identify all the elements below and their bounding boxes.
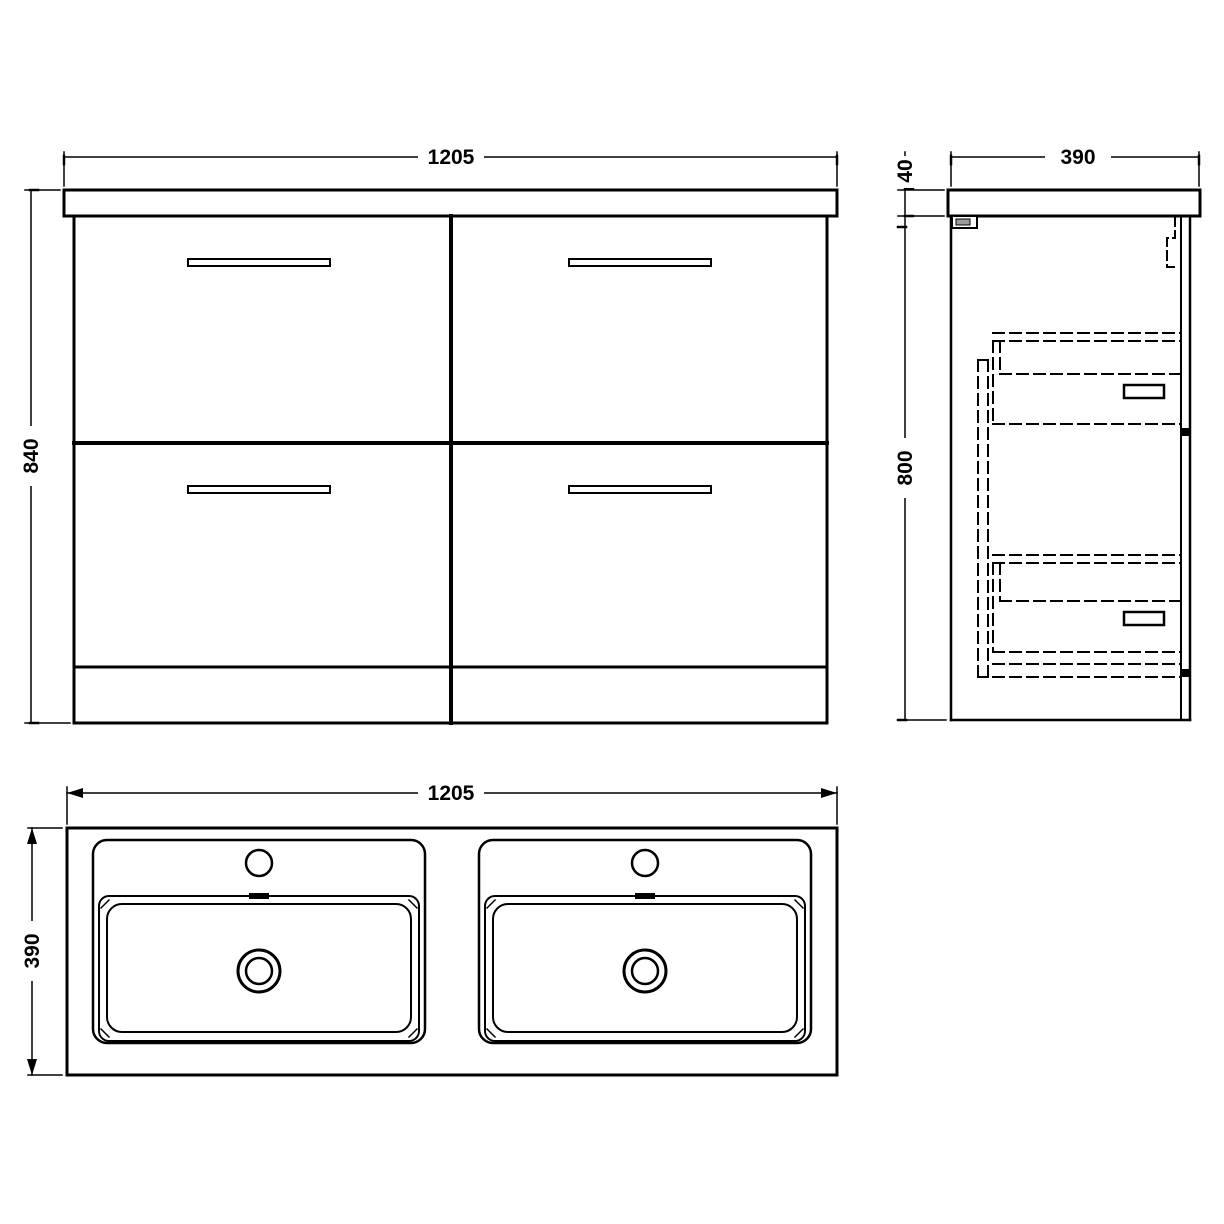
drawer-runner-clip	[1124, 385, 1164, 398]
dim-arrow	[821, 788, 837, 798]
wall-bracket-hidden	[1167, 217, 1178, 267]
dim-label-plan-width: 1205	[428, 782, 475, 805]
front-view	[64, 190, 837, 723]
dim-side-height: 800	[893, 216, 946, 720]
dim-arrow	[27, 828, 37, 844]
plan-worktop	[67, 828, 837, 1075]
side-worktop	[948, 190, 1200, 216]
drawer-handle	[188, 259, 330, 266]
plan-view	[67, 828, 837, 1075]
drawer-runner-clip	[1124, 612, 1164, 625]
dim-front-height: 840	[19, 190, 70, 723]
dim-label-front-height: 840	[20, 438, 43, 473]
drawer-handle	[569, 486, 711, 493]
front-worktop	[64, 190, 837, 216]
fixing-bracket	[952, 216, 977, 228]
dim-side-depth: 390	[951, 145, 1199, 186]
drawer-handle	[569, 259, 711, 266]
dim-side-worktop-thickness: 40	[893, 152, 944, 216]
overflow-slot	[635, 893, 655, 899]
dim-plan-depth: 390	[20, 828, 62, 1075]
drawer-handle	[188, 486, 330, 493]
dim-label-front-width: 1205	[428, 146, 475, 169]
dim-label-worktop-thickness: 40	[894, 159, 917, 182]
dim-label-plan-depth: 390	[21, 933, 44, 968]
dim-front-width: 1205	[64, 145, 837, 186]
dim-plan-width: 1205	[67, 781, 837, 824]
waste-clearance-hidden	[978, 360, 988, 677]
side-view	[948, 190, 1200, 720]
technical-drawing: 1205 840	[0, 0, 1224, 1224]
drawer-front-gap	[1180, 669, 1191, 677]
dim-label-side-height: 800	[894, 450, 917, 485]
dim-arrow	[27, 1059, 37, 1075]
drawer-front-gap	[1180, 428, 1191, 436]
upper-drawer-box-hidden	[993, 333, 1181, 424]
dim-label-side-depth: 390	[1060, 146, 1095, 169]
dim-arrow	[67, 788, 83, 798]
overflow-slot	[249, 893, 269, 899]
